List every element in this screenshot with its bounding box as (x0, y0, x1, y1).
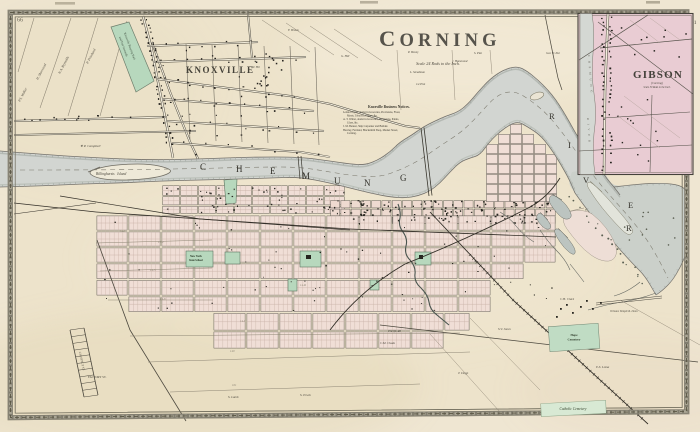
svg-text:State School: State School (189, 259, 203, 262)
svg-text:T. Dopp: T. Dopp (458, 371, 469, 375)
svg-text:S. Lamb: S. Lamb (228, 395, 239, 399)
svg-text:(Corning): (Corning) (651, 81, 663, 85)
svg-text:Meats, Tobacco, Cigars, &c.: Meats, Tobacco, Cigars, &c. (347, 114, 378, 117)
svg-text:Scale 24 Rods to the Inch.: Scale 24 Rods to the Inch. (416, 61, 460, 66)
svg-text:14-6: 14-6 (240, 319, 246, 323)
svg-text:G. Hill: G. Hill (341, 54, 350, 58)
svg-text:S.V. Jones: S.V. Jones (498, 327, 512, 331)
svg-text:14-R: 14-R (300, 283, 306, 287)
svg-text:FACTORY ST.: FACTORY ST. (88, 375, 107, 379)
svg-text:14-8: 14-8 (160, 297, 166, 301)
svg-text:Glass, &c.: Glass, &c. (347, 121, 359, 124)
svg-text:M: M (302, 171, 310, 181)
svg-text:Orleans Temple R. Donn: Orleans Temple R. Donn (610, 310, 638, 313)
svg-text:Corning.: Corning. (347, 132, 357, 135)
svg-text:R: R (626, 223, 632, 233)
svg-text:C: C (200, 162, 206, 172)
svg-text:Knoxville Business Notices.: Knoxville Business Notices. (368, 105, 410, 109)
svg-text:V: V (583, 175, 590, 185)
svg-text:E: E (270, 166, 276, 176)
svg-text:N: N (364, 178, 371, 188)
svg-text:C.M. Clada: C.M. Clada (380, 341, 395, 345)
svg-text:Phelps Rd: Phelps Rd (387, 329, 401, 333)
svg-text:161: 161 (232, 383, 237, 387)
svg-text:New York: New York (190, 255, 202, 258)
svg-text:★ P. Campbell: ★ P. Campbell (80, 144, 100, 148)
svg-text:I: I (568, 140, 571, 150)
svg-text:E: E (628, 200, 633, 210)
svg-text:14-2: 14-2 (158, 240, 164, 244)
svg-text:J. M. Bennet, Ship Carpenter a: J. M. Bennet, Ship Carpenter and Builder… (343, 125, 388, 128)
svg-text:E.S. Loma: E.S. Loma (595, 365, 610, 369)
svg-text:GIBSON: GIBSON (633, 69, 683, 81)
svg-text:S. Erwin: S. Erwin (300, 393, 311, 397)
svg-text:L. Steadman: L. Steadman (409, 70, 426, 74)
svg-text:U: U (334, 176, 341, 186)
svg-text:R: R (549, 111, 555, 121)
svg-text:14-1: 14-1 (120, 229, 126, 233)
svg-text:1st Plot: 1st Plot (416, 82, 425, 86)
svg-text:Catholic Cemetery: Catholic Cemetery (559, 407, 586, 411)
svg-text:Scale 30 Rods to the Inch.: Scale 30 Rods to the Inch. (643, 86, 670, 89)
svg-text:Billinghursts Island: Billinghursts Island (96, 172, 126, 176)
svg-text:Cemetery: Cemetery (568, 338, 581, 342)
svg-text:Hope: Hope (570, 333, 578, 337)
svg-text:W. Hil: W. Hil (252, 65, 260, 69)
svg-text:140: 140 (230, 349, 235, 353)
svg-text:F. Brown: F. Brown (287, 28, 299, 32)
svg-text:14-5: 14-5 (150, 268, 156, 272)
svg-text:H: H (236, 164, 243, 174)
svg-text:S. Plat: S. Plat (474, 51, 482, 55)
svg-text:KNOXVILLE: KNOXVILLE (186, 65, 255, 75)
svg-text:G: G (400, 173, 407, 183)
svg-text:C.H. Clark: C.H. Clark (560, 297, 575, 301)
